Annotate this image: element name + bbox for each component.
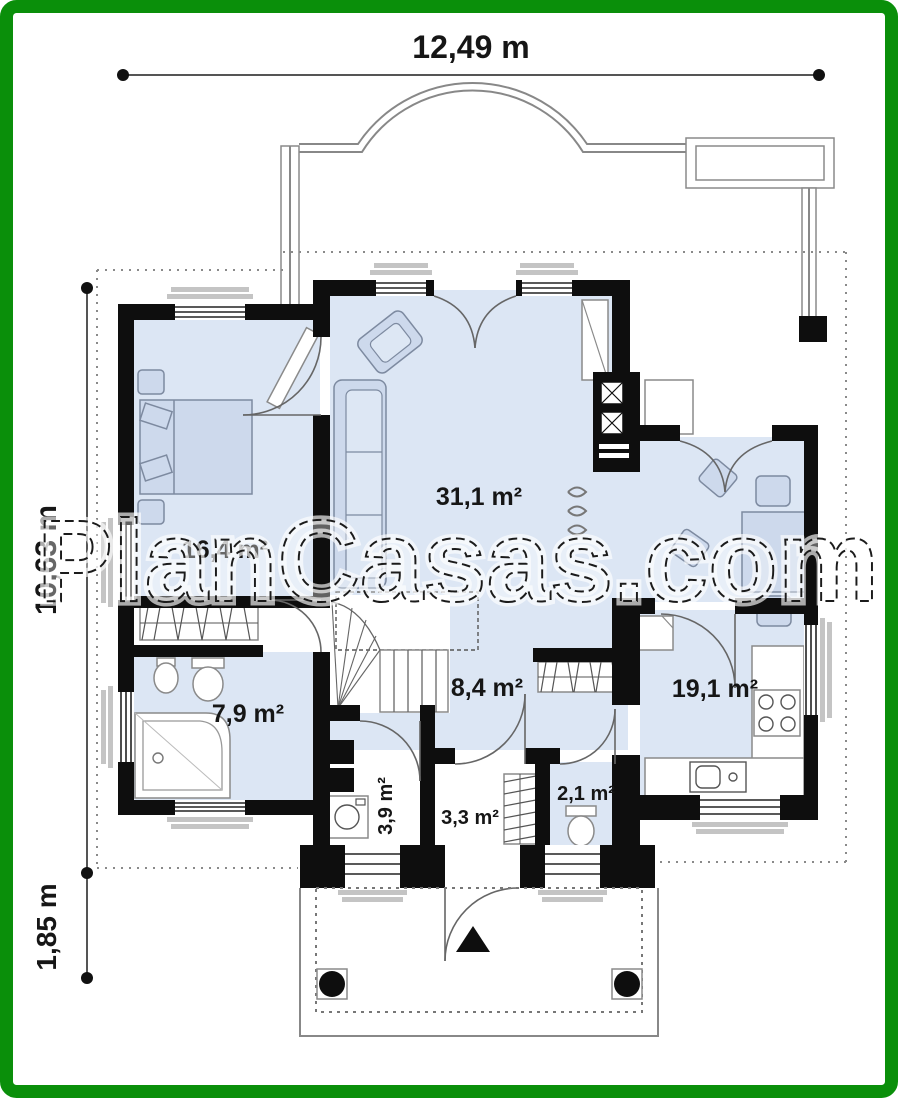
- kitchen-counter-bottom: [645, 758, 804, 796]
- toilet: [192, 658, 224, 701]
- bathroom-sink: [154, 658, 178, 693]
- wc-area-label: 2,1 m²: [557, 783, 615, 805]
- washing-machine: [326, 796, 368, 838]
- wc-toilet: [566, 806, 596, 846]
- bed: [140, 400, 252, 494]
- chimney: [593, 372, 640, 472]
- dimension-porch-label: 1,85 m: [31, 883, 62, 970]
- porch-column: [319, 971, 345, 997]
- terrace-column: [799, 316, 827, 342]
- utility-porch-window: [338, 845, 407, 902]
- stove-icon: [754, 690, 800, 736]
- bathroom-bottom-window: [167, 800, 253, 829]
- kitchen-area-label: 19,1 m²: [672, 675, 758, 703]
- floor-plan-image: 31,1 m² 16,4 m² 7,9 m² 8,4 m² 19,1 m² 3,…: [0, 0, 898, 1098]
- hall-area-label: 8,4 m²: [451, 674, 523, 702]
- watermark: PlanCasas.com PlanCasas.com: [37, 496, 879, 626]
- hall-wardrobe: [538, 662, 618, 692]
- utility-area-label: 3,9 m²: [375, 777, 397, 835]
- boiler: [328, 768, 354, 792]
- vestibule-closet: [504, 774, 536, 844]
- bathroom-area-label: 7,9 m²: [212, 700, 284, 728]
- wc-porch-window: [538, 845, 607, 902]
- porch-column: [614, 971, 640, 997]
- boiler: [328, 740, 354, 764]
- floor-plan-svg: 31,1 m² 16,4 m² 7,9 m² 8,4 m² 19,1 m² 3,…: [0, 0, 898, 1098]
- watermark-text: PlanCasas.com: [37, 496, 879, 626]
- nightstand: [138, 370, 164, 394]
- dimension-width-label: 12,49 m: [412, 29, 529, 65]
- kitchen-side-window: [804, 618, 832, 722]
- vestibule-area-label: 3,3 m²: [441, 807, 499, 829]
